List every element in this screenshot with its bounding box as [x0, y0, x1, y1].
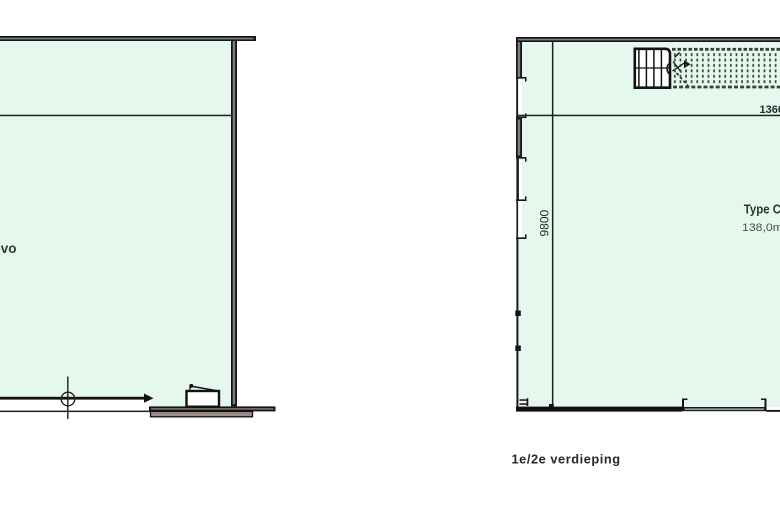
svg-text:ovo: ovo — [0, 241, 17, 256]
svg-text:9800: 9800 — [538, 209, 552, 236]
svg-text:Type C2: Type C2 — [744, 203, 780, 217]
svg-text:138,0m²: 138,0m² — [742, 222, 780, 234]
svg-text:1360: 1360 — [760, 104, 780, 116]
svg-text:1e/2e verdieping: 1e/2e verdieping — [512, 452, 621, 467]
